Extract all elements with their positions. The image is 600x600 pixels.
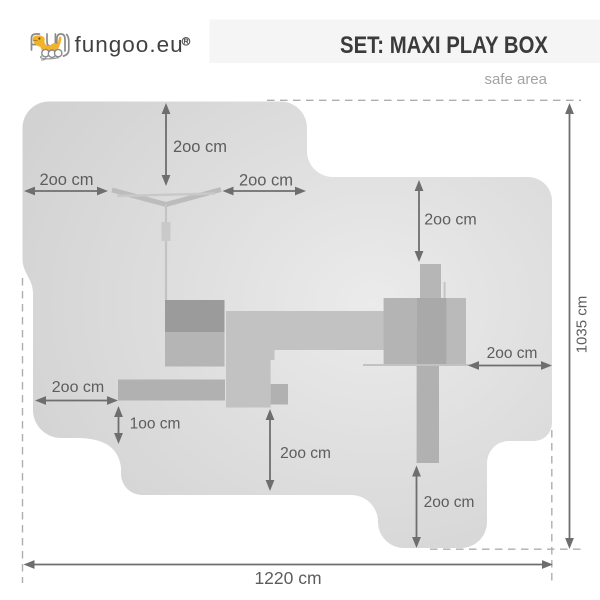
svg-text:1035 cm: 1035 cm bbox=[574, 296, 591, 354]
svg-text:SET: MAXI PLAY BOX: SET: MAXI PLAY BOX bbox=[340, 32, 549, 59]
svg-text:2oo cm: 2oo cm bbox=[280, 445, 331, 462]
svg-text:1220 cm: 1220 cm bbox=[254, 568, 321, 588]
svg-text:2oo cm: 2oo cm bbox=[173, 138, 227, 156]
svg-text:fungoo.eu: fungoo.eu bbox=[75, 32, 184, 57]
svg-text:2oo cm: 2oo cm bbox=[52, 379, 104, 396]
svg-text:2oo cm: 2oo cm bbox=[424, 494, 475, 511]
svg-text:2oo cm: 2oo cm bbox=[239, 172, 293, 190]
svg-text:2oo cm: 2oo cm bbox=[424, 212, 476, 229]
svg-text:1oo cm: 1oo cm bbox=[130, 416, 181, 433]
svg-text:2oo cm: 2oo cm bbox=[487, 345, 538, 362]
svg-text:2oo cm: 2oo cm bbox=[39, 171, 93, 189]
svg-text:safe area: safe area bbox=[484, 71, 547, 88]
